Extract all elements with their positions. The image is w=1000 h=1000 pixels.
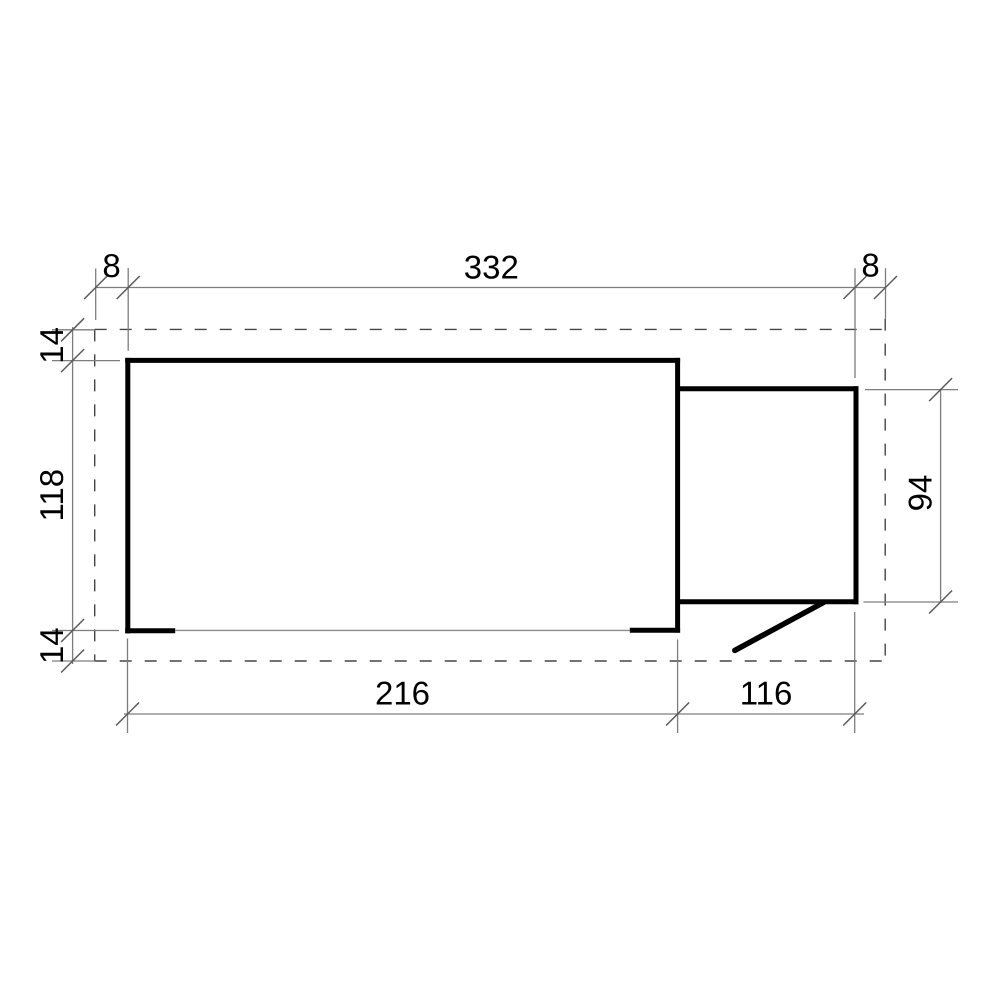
svg-text:94: 94 <box>901 475 938 512</box>
svg-text:118: 118 <box>33 469 70 522</box>
svg-text:8: 8 <box>861 247 879 284</box>
svg-text:8: 8 <box>102 247 120 284</box>
svg-text:14: 14 <box>33 327 70 364</box>
svg-text:216: 216 <box>375 675 430 712</box>
svg-text:116: 116 <box>740 675 793 712</box>
svg-text:332: 332 <box>464 248 519 285</box>
svg-text:14: 14 <box>33 627 70 664</box>
